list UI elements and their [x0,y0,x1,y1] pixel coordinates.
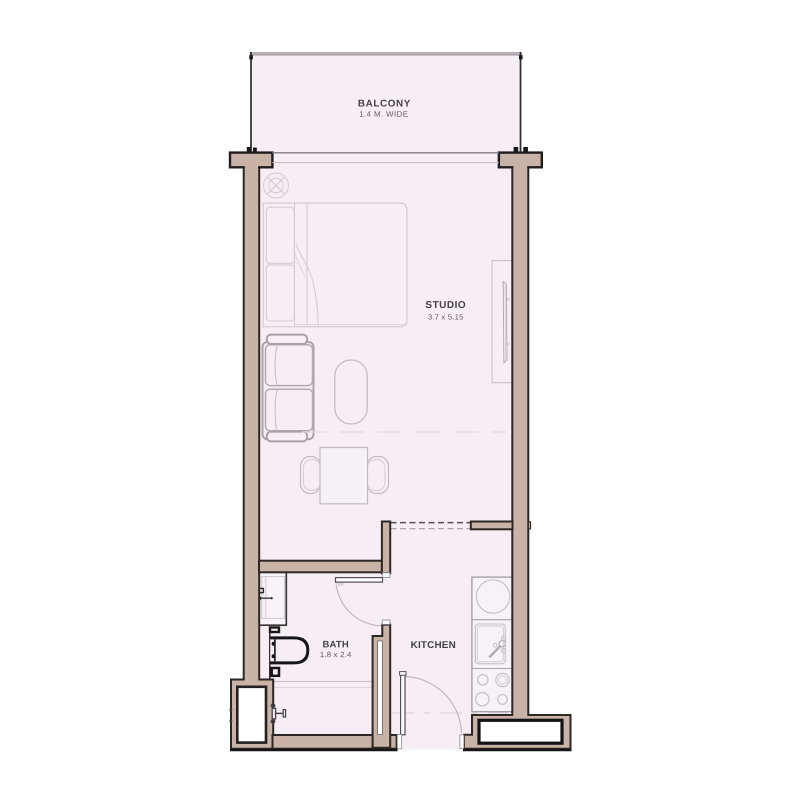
svg-text:1.4 M. WIDE: 1.4 M. WIDE [359,110,408,119]
svg-text:3.7 x 5.15: 3.7 x 5.15 [428,312,464,321]
svg-text:BATH: BATH [322,639,348,650]
svg-text:1.8 x 2.4: 1.8 x 2.4 [320,650,352,659]
svg-text:BALCONY: BALCONY [358,98,411,109]
svg-text:KITCHEN: KITCHEN [411,640,456,651]
svg-text:STUDIO: STUDIO [425,300,466,311]
